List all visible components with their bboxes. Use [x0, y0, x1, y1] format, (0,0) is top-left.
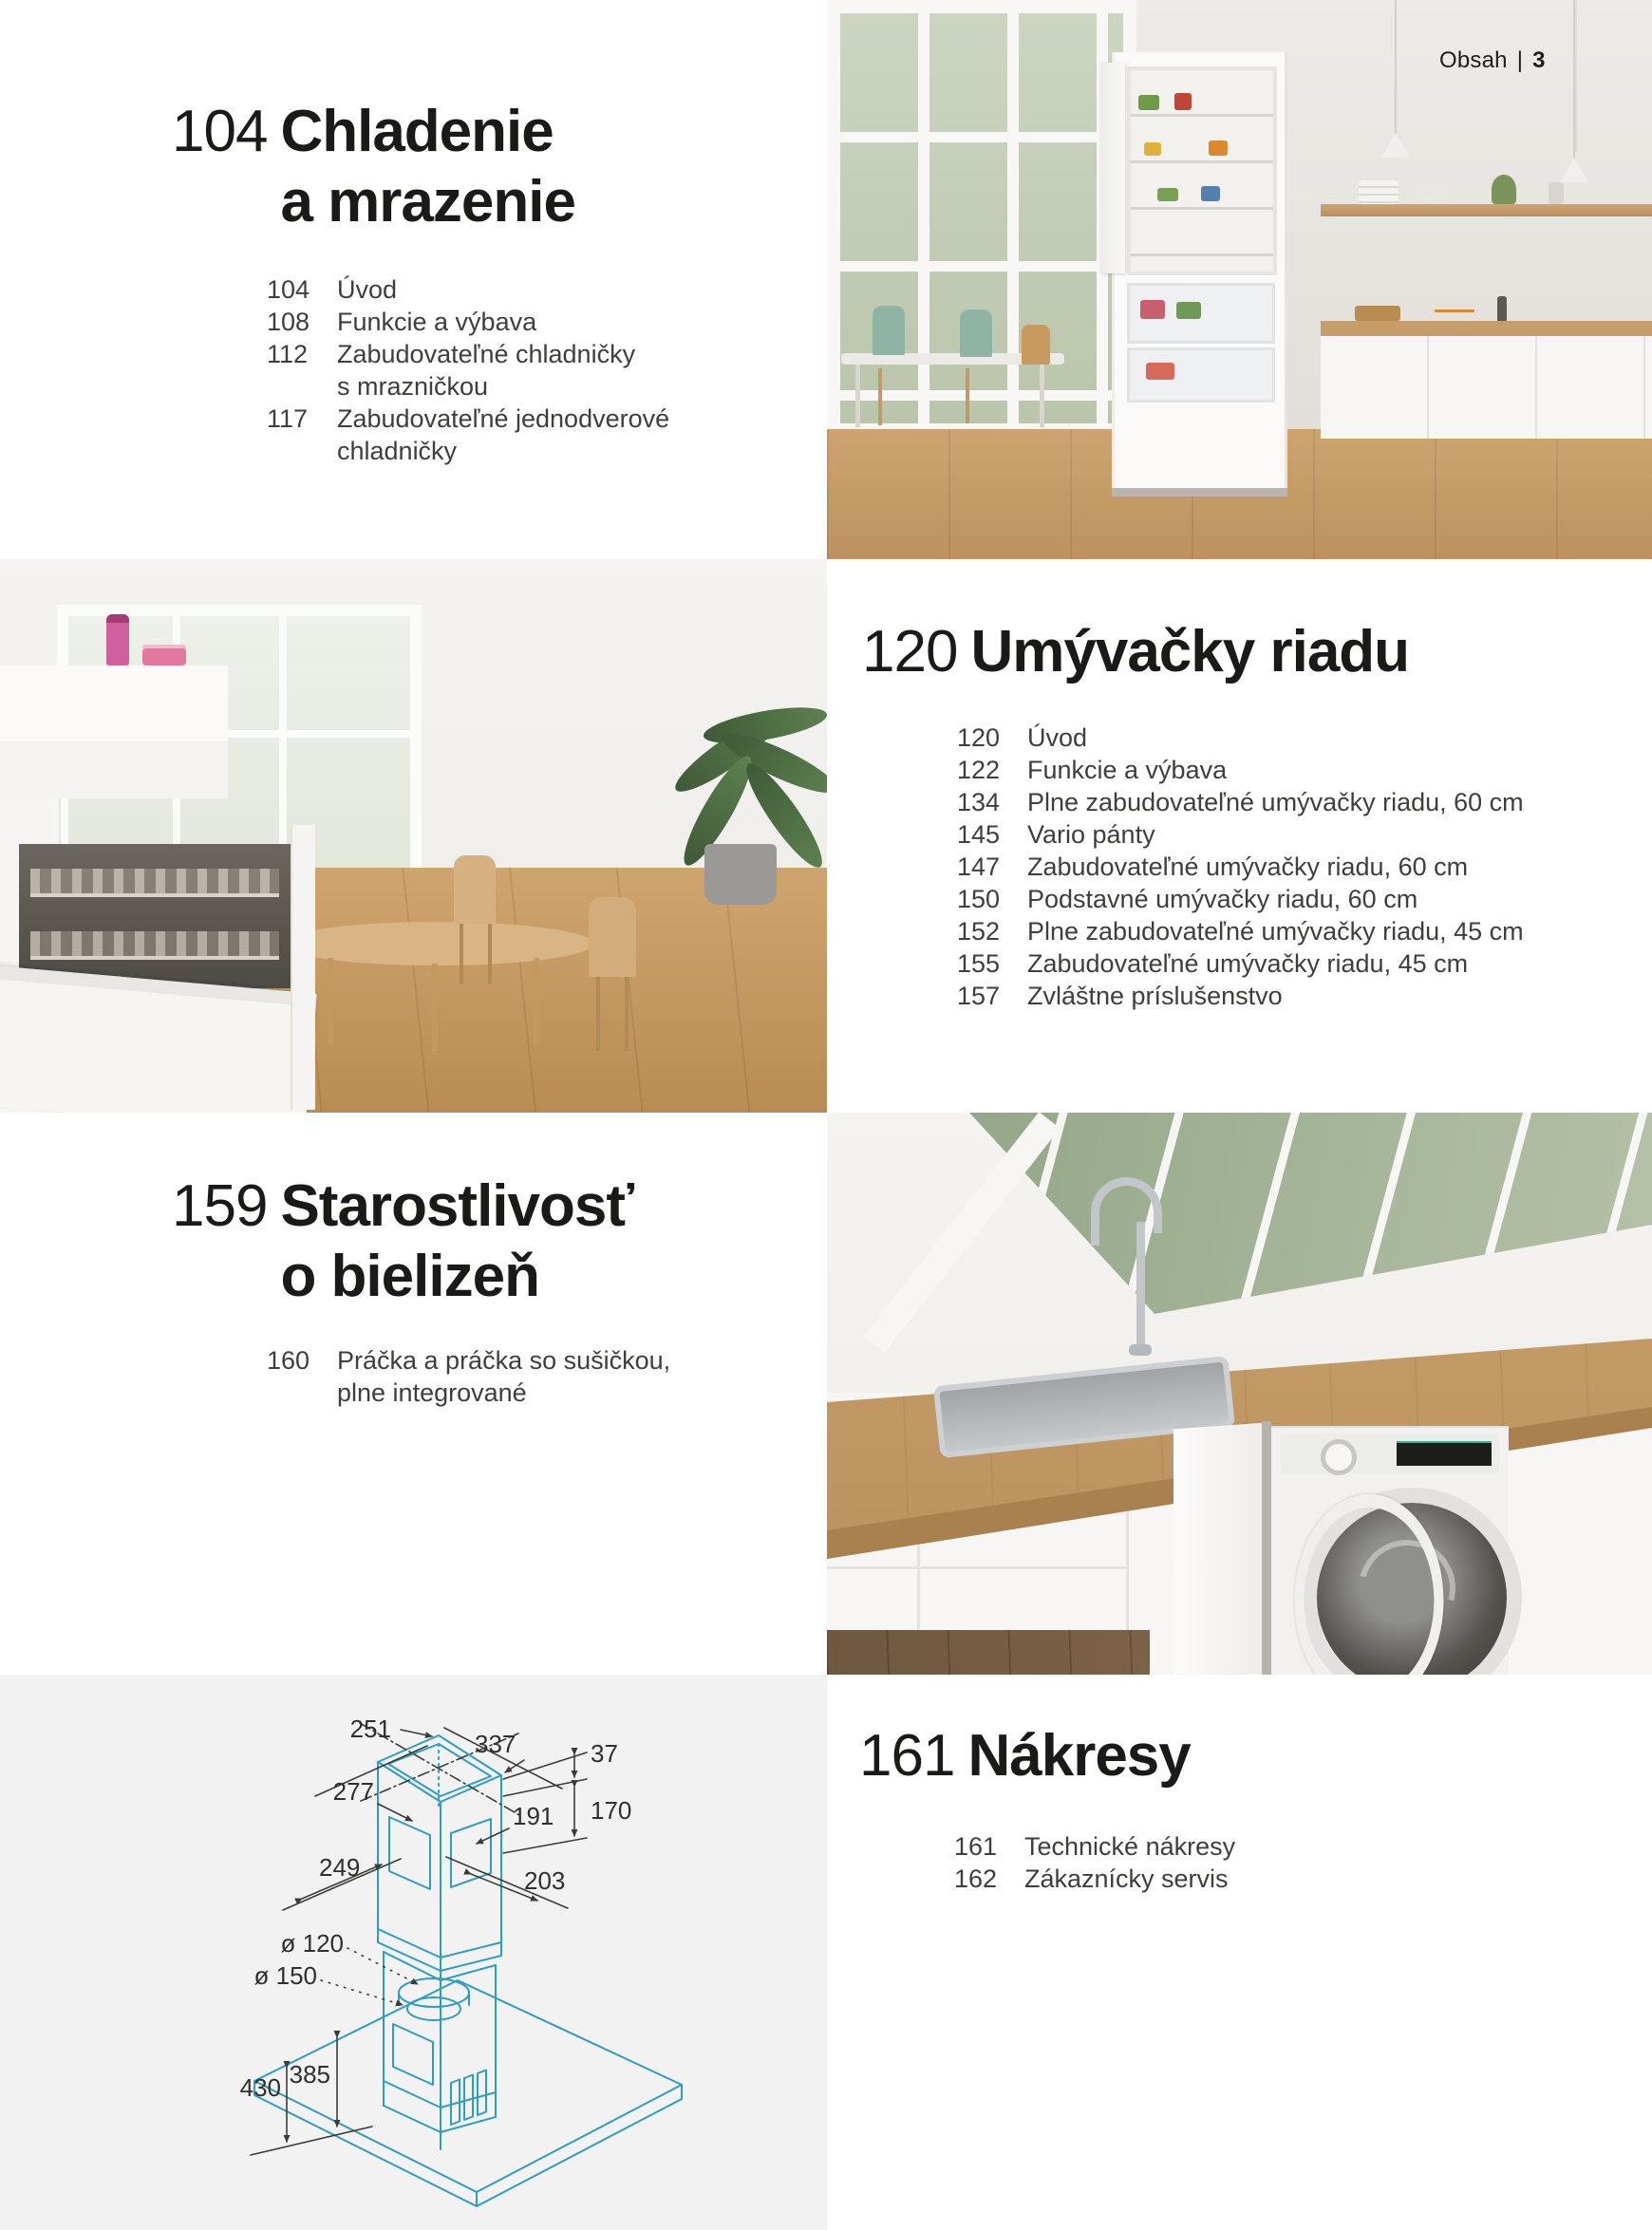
- toc-item[interactable]: 152Plne zabudovateľné umývačky riadu, 45…: [957, 915, 1641, 947]
- window: [827, 0, 1136, 437]
- toc-item[interactable]: 104Úvod: [267, 273, 798, 306]
- page-number: 3: [1532, 47, 1546, 73]
- toc-item[interactable]: 122Funkcie a výbava: [957, 754, 1641, 786]
- toc-item-label: Podstavné umývačky riadu, 60 cm: [1027, 883, 1417, 915]
- section-number: 120: [862, 617, 957, 687]
- dim-label-277: 277: [333, 1777, 374, 1806]
- section-title: Umývačky riadu: [970, 617, 1409, 687]
- toc-item[interactable]: 147Zabudovateľné umývačky riadu, 60 cm: [957, 851, 1641, 883]
- toc-item[interactable]: 160Práčka a práčka so sušičkou, plne int…: [267, 1344, 798, 1409]
- dim-label-37: 37: [591, 1739, 618, 1768]
- cutting-board: [1355, 306, 1400, 321]
- toc-list-umyvacky: 120Úvod 122Funkcie a výbava 134Plne zabu…: [957, 721, 1641, 1012]
- toc-item-label: Zvláštne príslušenstvo: [1027, 980, 1283, 1012]
- photo-laundry-washer: [827, 1113, 1652, 1675]
- dim-label-203: 203: [524, 1866, 565, 1895]
- faucet-base: [1129, 1344, 1152, 1356]
- washer-knob: [1321, 1439, 1357, 1475]
- toc-item-page: 117: [267, 403, 337, 467]
- toc-item-label: Úvod: [1027, 721, 1087, 754]
- cabinet-side-panel: [291, 825, 315, 1110]
- food-item: [1209, 141, 1228, 156]
- toc-item[interactable]: 112Zabudovateľné chladničky s mrazničkou: [267, 338, 798, 403]
- section-number: 159: [172, 1171, 267, 1312]
- dishwasher-recess: [19, 844, 291, 988]
- washer-display: [1397, 1441, 1492, 1466]
- dark-floor: [827, 1630, 1150, 1675]
- technical-drawing-panel: 251 337 37 170 277 191 249 203 ø 120 ø 1…: [0, 1675, 827, 2230]
- dim-label-430: 430: [240, 2073, 281, 2102]
- dishwasher-rack: [30, 869, 279, 897]
- header-label: Obsah: [1439, 47, 1508, 73]
- toc-item-page: 160: [267, 1344, 337, 1409]
- section-heading-umyvacky[interactable]: 120 Umývačky riadu: [862, 617, 1409, 687]
- toc-item-label: Plne zabudovateľné umývačky riadu, 45 cm: [1027, 915, 1524, 947]
- pendant-cord: [1573, 0, 1575, 159]
- section-title: Chladenie a mrazenie: [280, 97, 575, 237]
- food-item: [1144, 142, 1161, 156]
- toc-item-page: 134: [957, 786, 1027, 818]
- chair: [960, 309, 992, 357]
- toc-item-label: Zabudovateľné umývačky riadu, 60 cm: [1027, 851, 1468, 883]
- faucet-pipe: [1136, 1222, 1145, 1350]
- dim-label-191: 191: [513, 1802, 554, 1830]
- door-gap: [1262, 1421, 1271, 1675]
- open-cabinet-door: [1173, 1423, 1264, 1675]
- toc-item-label: Technické nákresy: [1024, 1830, 1235, 1863]
- page-header: Obsah|3: [1439, 47, 1546, 74]
- toc-item-page: 147: [957, 851, 1027, 883]
- section-title: Nákresy: [967, 1721, 1190, 1791]
- table-leg: [534, 958, 539, 1045]
- frozen-item: [1140, 300, 1165, 319]
- fridge-open-door: [1100, 63, 1125, 273]
- toc-item-label: Zabudovateľné umývačky riadu, 45 cm: [1027, 947, 1468, 980]
- dim-label-dia150: ø 150: [254, 1961, 318, 1990]
- frozen-item: [1176, 302, 1201, 319]
- toc-item[interactable]: 157Zvláštne príslušenstvo: [957, 980, 1641, 1012]
- toc-item[interactable]: 155Zabudovateľné umývačky riadu, 45 cm: [957, 947, 1641, 980]
- toc-item-page: 150: [957, 883, 1027, 915]
- dishwasher-rack: [30, 931, 279, 960]
- toc-item-page: 108: [267, 306, 337, 338]
- dim-label-251: 251: [350, 1715, 391, 1743]
- toc-item-page: 161: [954, 1830, 1024, 1863]
- dim-label-170: 170: [591, 1796, 631, 1825]
- section-number: 104: [172, 97, 267, 237]
- stool: [1022, 325, 1050, 365]
- base-cabinets: [1321, 336, 1652, 439]
- toc-item-label: Zabudovateľné jednodverové chladničky: [337, 403, 669, 467]
- toc-item-page: 155: [957, 947, 1027, 980]
- bottle: [1497, 296, 1507, 321]
- food-item: [1174, 93, 1192, 110]
- dim-label-337: 337: [475, 1730, 516, 1758]
- dimension-labels: 251 337 37 170 277 191 249 203 ø 120 ø 1…: [240, 1715, 632, 2102]
- chair-leg: [460, 924, 463, 984]
- faucet-spout: [1091, 1219, 1099, 1246]
- dim-label-dia120: ø 120: [281, 1929, 345, 1958]
- chair-leg: [878, 368, 882, 425]
- toc-item-page: 145: [957, 818, 1027, 851]
- toc-item[interactable]: 108Funkcie a výbava: [267, 306, 798, 338]
- catalog-contents-page: Obsah|3 104 Chladenie a mrazenie 104Úvod…: [0, 0, 1652, 2230]
- toc-item-page: 120: [957, 721, 1027, 754]
- chair: [589, 897, 636, 977]
- chair-leg: [596, 977, 600, 1051]
- counter-front: [0, 741, 228, 798]
- toc-item[interactable]: 120Úvod: [957, 721, 1641, 754]
- toc-item[interactable]: 162Zákaznícky servis: [954, 1863, 1524, 1895]
- food-item: [1138, 95, 1159, 110]
- plant-pot: [704, 844, 777, 905]
- food-item: [1157, 188, 1178, 201]
- pendant-cord: [1395, 0, 1397, 135]
- toc-list-chladenie: 104Úvod 108Funkcie a výbava 112Zabudovat…: [267, 273, 798, 467]
- pink-bottle: [106, 614, 129, 665]
- hood-mounting-drawing: 251 337 37 170 277 191 249 203 ø 120 ø 1…: [142, 1703, 731, 2221]
- plate-stack: [1359, 180, 1399, 204]
- dim-label-249: 249: [319, 1853, 360, 1882]
- wall-shelf: [1321, 204, 1652, 216]
- table-leg: [1040, 365, 1044, 427]
- table-leg: [328, 958, 333, 1045]
- shelf-plant: [1492, 175, 1516, 204]
- table-leg: [432, 964, 438, 1055]
- fruit-bowl: [1435, 309, 1474, 321]
- section-number: 161: [859, 1721, 954, 1791]
- section-heading-nakresy[interactable]: 161 Nákresy: [859, 1721, 1191, 1791]
- section-title: Starostlivosť o bielizeň: [280, 1171, 633, 1312]
- toc-item[interactable]: 161Technické nákresy: [954, 1830, 1524, 1863]
- pink-lunchbox: [142, 645, 186, 665]
- frozen-item: [1146, 363, 1174, 380]
- toc-item-label: Zákaznícky servis: [1024, 1863, 1229, 1895]
- wall-corner-line: [1575, 0, 1577, 152]
- counter-block: [0, 665, 228, 741]
- toc-item-label: Úvod: [337, 273, 397, 306]
- food-item: [1201, 186, 1220, 201]
- toc-item-page: 157: [957, 980, 1027, 1012]
- toc-list-bielizen: 160Práčka a práčka so sušičkou, plne int…: [267, 1344, 798, 1409]
- toc-item-page: 112: [267, 338, 337, 403]
- chair: [873, 306, 905, 355]
- toc-item-page: 122: [957, 754, 1027, 786]
- toc-item[interactable]: 117Zabudovateľné jednodverové chladničky: [267, 403, 798, 467]
- toc-item-label: Plne zabudovateľné umývačky riadu, 60 cm: [1027, 786, 1524, 818]
- toc-item-page: 152: [957, 915, 1027, 947]
- toc-item-page: 104: [267, 273, 337, 306]
- dim-label-385: 385: [290, 2060, 330, 2089]
- chair-leg: [966, 368, 969, 423]
- toc-item-label: Zabudovateľné chladničky s mrazničkou: [337, 338, 635, 403]
- cabinet-seam: [827, 1566, 1126, 1569]
- toc-item-label: Funkcie a výbava: [1027, 754, 1227, 786]
- toc-item[interactable]: 145Vario pánty: [957, 818, 1641, 851]
- photo-kitchen-fridge: [827, 0, 1652, 559]
- section-heading-chladenie[interactable]: 104 Chladenie a mrazenie: [172, 97, 575, 237]
- countertop: [1321, 321, 1652, 336]
- toc-item[interactable]: 134Plne zabudovateľné umývačky riadu, 60…: [957, 786, 1641, 818]
- table-leg: [855, 365, 860, 427]
- toc-item[interactable]: 150Podstavné umývačky riadu, 60 cm: [957, 883, 1641, 915]
- toc-item-label: Vario pánty: [1027, 818, 1155, 851]
- toc-item-label: Funkcie a výbava: [337, 306, 536, 338]
- header-separator: |: [1517, 47, 1523, 73]
- fridge-plinth: [1112, 488, 1287, 497]
- photo-kitchen-dishwasher: [0, 559, 827, 1113]
- chair: [454, 855, 496, 924]
- toc-list-nakresy: 161Technické nákresy 162Zákaznícky servi…: [954, 1830, 1524, 1895]
- section-heading-bielizen[interactable]: 159 Starostlivosť o bielizeň: [172, 1171, 633, 1312]
- toc-item-page: 162: [954, 1863, 1024, 1895]
- toc-item-label: Práčka a práčka so sušičkou, plne integr…: [337, 1344, 670, 1409]
- chair-leg: [625, 977, 629, 1051]
- chair-leg: [488, 924, 492, 984]
- jar: [1549, 182, 1564, 204]
